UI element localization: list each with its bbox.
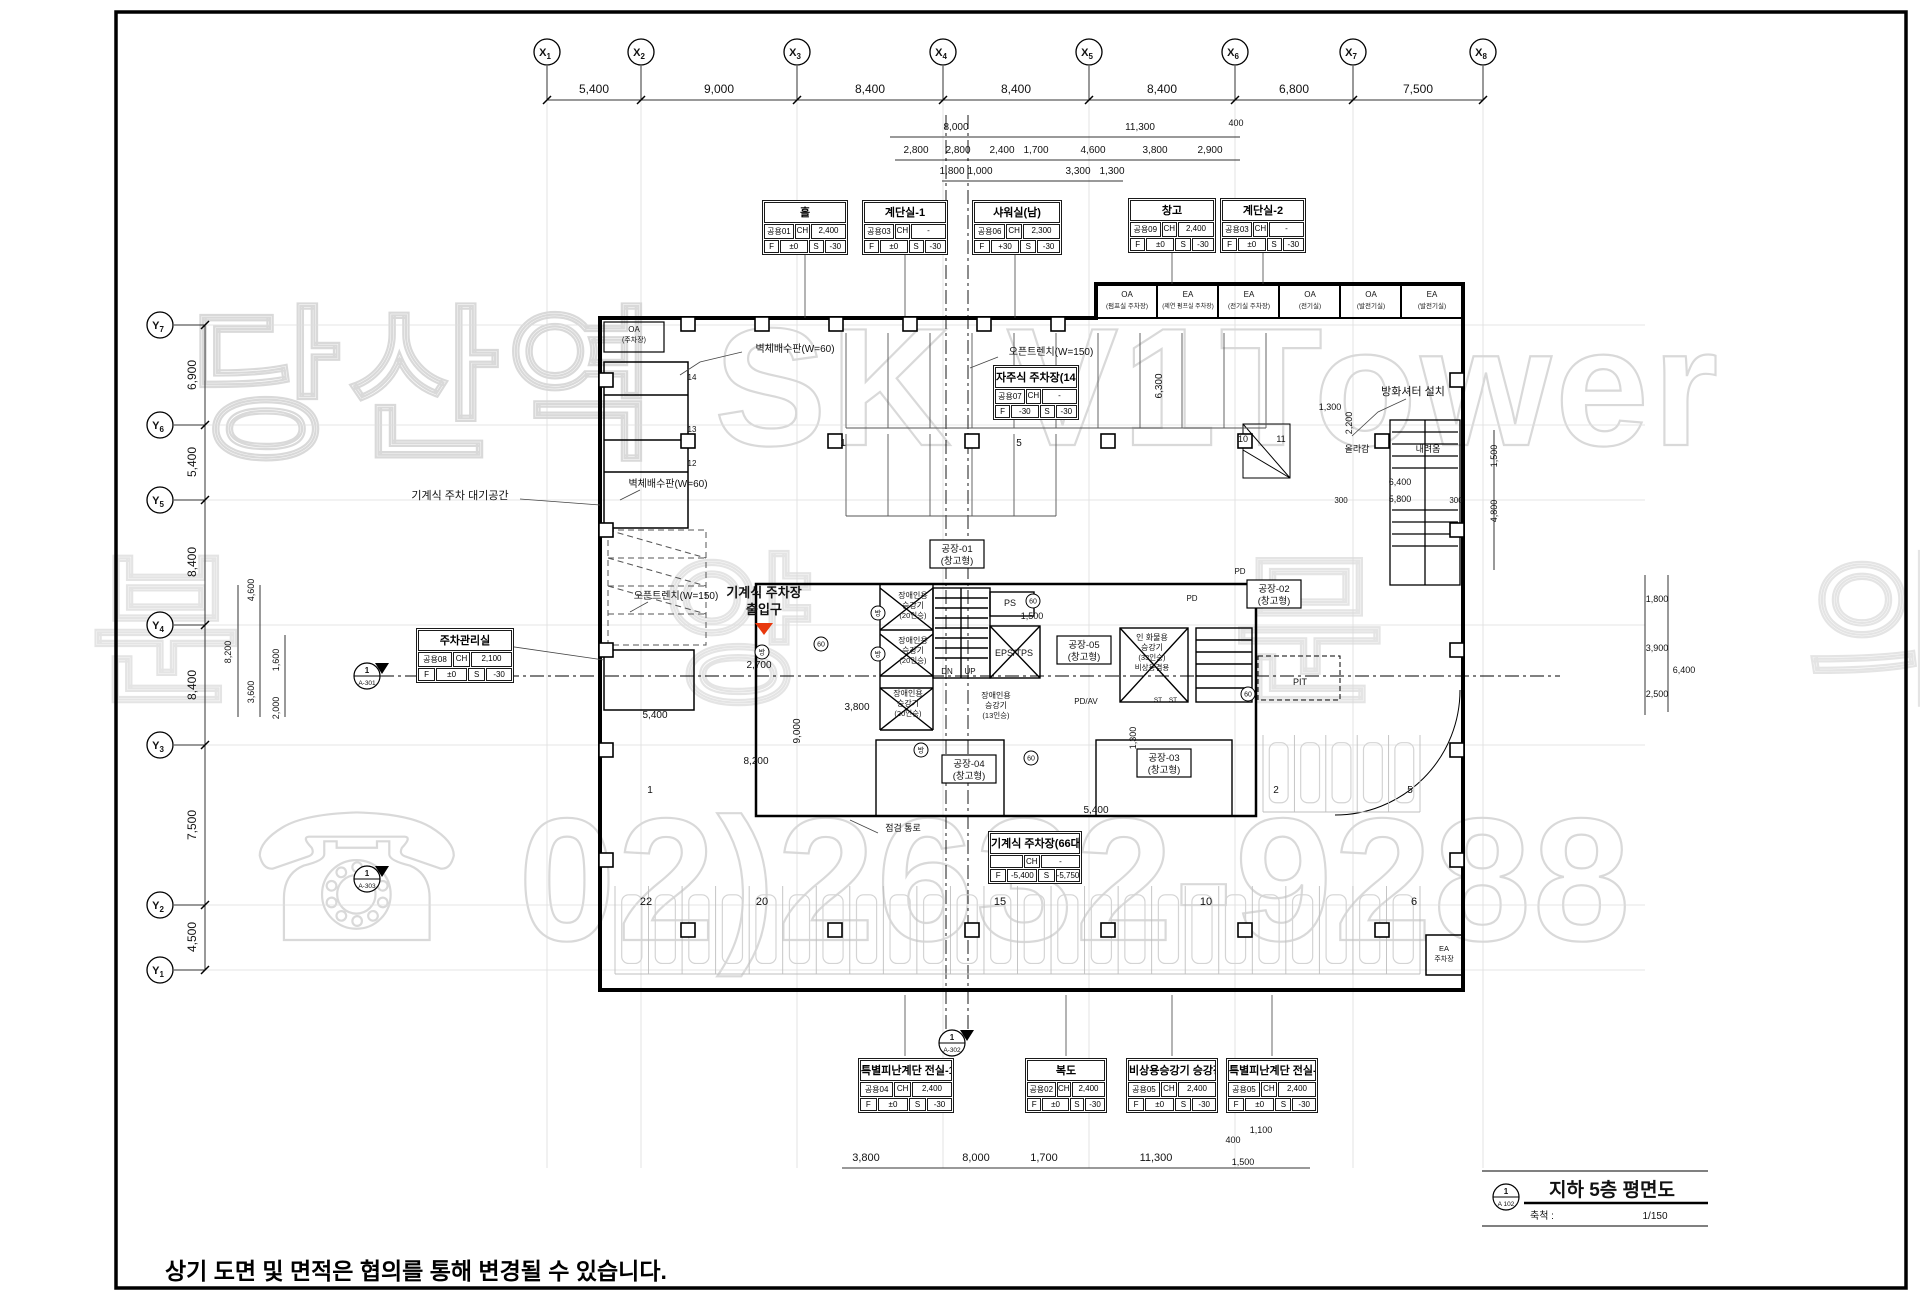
dim-text: 승강기 <box>902 600 924 610</box>
dim-text: (20인승) <box>899 655 927 665</box>
dim-text: 5,400 <box>579 82 609 96</box>
dim-text: 4,600 <box>1080 145 1105 156</box>
dim-text: 3,800 <box>1142 145 1167 156</box>
dim-text: 장애인용 <box>898 635 927 645</box>
dim-text: 400 <box>1228 118 1243 128</box>
dim-text: 2 <box>1273 785 1279 796</box>
dim-text: (창고형) <box>1068 652 1101 663</box>
dim-text: 승강기 <box>1141 642 1163 652</box>
fire-rating-text: 60 <box>1027 756 1035 763</box>
dim-text: (발전기실) <box>1418 301 1446 310</box>
dim-text: 1,700 <box>1030 1152 1058 1164</box>
column <box>829 317 843 331</box>
dim-text: 8,400 <box>1001 82 1031 96</box>
dim-text: 1,700 <box>1023 145 1048 156</box>
fire-rating-text: 60 <box>1244 692 1252 699</box>
dim-text: 4,800 <box>1489 500 1499 523</box>
column <box>1450 373 1464 387</box>
dim-text: PIT <box>1293 677 1308 687</box>
titleblock-sheet: A 102 <box>1498 1201 1515 1208</box>
dim-text: 1 <box>840 438 846 449</box>
column <box>599 643 613 657</box>
fire-rating-text: 60 <box>1029 599 1037 606</box>
column <box>1450 853 1464 867</box>
column <box>1238 923 1252 937</box>
dim-text: 3,600 <box>246 681 256 704</box>
dim-text: 1,300 <box>1099 166 1124 177</box>
dim-text: 2,200 <box>1344 412 1354 435</box>
dim-text: 공장-02 <box>1258 584 1289 595</box>
column <box>1101 434 1115 448</box>
column <box>828 923 842 937</box>
dim-text: 2,800 <box>945 145 970 156</box>
section-number: 1 <box>950 1033 955 1042</box>
dim-text: 공장-01 <box>941 544 972 555</box>
dim-text: 3,800 <box>844 702 869 713</box>
dim-text: 내려옴 <box>1416 444 1441 454</box>
open-trench-label: 오픈트렌치(W=150) <box>634 590 719 602</box>
dim-text: 1,800 <box>1646 594 1669 604</box>
dim-text: 2,000 <box>271 697 281 720</box>
dim-text: EPS/TPS <box>995 648 1033 658</box>
column <box>599 853 613 867</box>
dim-text: 비상용겸용 <box>1135 662 1170 672</box>
dim-text: 11,300 <box>1140 1152 1173 1164</box>
dim-text: 8,400 <box>855 82 885 96</box>
section-number: 1 <box>365 666 370 675</box>
dim-text: 13 <box>688 425 697 434</box>
column <box>977 317 991 331</box>
dim-text: 공장-04 <box>953 759 984 770</box>
dim-text: 1,800 <box>939 166 964 177</box>
dim-text: 2,400 <box>989 145 1014 156</box>
inspection-path-label: 점검 통로 <box>885 822 921 833</box>
dim-text: 5,400 <box>1083 805 1108 816</box>
entrance-label-line2: 출입구 <box>746 602 782 617</box>
column <box>1051 317 1065 331</box>
dim-text: 8,200 <box>743 756 768 767</box>
column <box>1375 434 1389 448</box>
dim-text: 8,200 <box>223 641 233 664</box>
dim-text: 10 <box>1200 896 1212 908</box>
dim-text: 7,500 <box>1403 82 1433 96</box>
dim-text: 4,500 <box>185 922 199 952</box>
dim-text: PD/AV <box>1074 697 1098 706</box>
dim-text: OA <box>1121 290 1133 299</box>
column <box>1375 923 1389 937</box>
dim-text: 20 <box>756 896 768 908</box>
column <box>599 523 613 537</box>
dim-text: 5,400 <box>185 447 199 477</box>
column <box>965 923 979 937</box>
dim-text: 1,100 <box>1250 1125 1273 1135</box>
dim-text: 8,400 <box>1147 82 1177 96</box>
open-trench-label: 오픈트렌치(W=150) <box>1009 346 1094 358</box>
dim-text: (주차장) <box>622 335 646 344</box>
dim-text: 공장-05 <box>1068 640 1099 651</box>
dim-text: 7,500 <box>185 810 199 840</box>
dim-text: 1,500 <box>1021 611 1044 621</box>
dim-text: 올라감 <box>1345 443 1370 454</box>
dim-text: OA <box>628 325 640 334</box>
dim-text: EA <box>1183 290 1194 299</box>
column <box>1450 643 1464 657</box>
dim-text: PD <box>1234 567 1245 576</box>
column <box>903 317 917 331</box>
dim-text: 6,800 <box>1279 82 1309 96</box>
dim-text: PS <box>1004 598 1016 608</box>
entrance-label-line1: 기계식 주차장 <box>726 585 801 600</box>
waiting-area-label: 기계식 주차 대기공간 <box>411 489 508 502</box>
dim-text: 장애인용 <box>898 590 927 600</box>
dim-text: (20인승) <box>894 708 922 718</box>
dim-text: (13인승) <box>982 710 1010 720</box>
dim-text: (창고형) <box>953 771 986 782</box>
dim-text: OA <box>1365 290 1377 299</box>
dim-text: DN <box>941 667 953 676</box>
dim-text: 1,000 <box>967 166 992 177</box>
dim-text: 3,900 <box>1646 643 1669 653</box>
dim-text: 6,900 <box>185 360 199 390</box>
dim-text: 인 화물용 <box>1136 632 1168 642</box>
dim-text: OA <box>1304 290 1316 299</box>
section-sheet: A-302 <box>943 1047 961 1054</box>
dim-text: 3,300 <box>1065 166 1090 177</box>
dim-text: (전기실 주차장) <box>1228 301 1270 310</box>
dim-text: 공장-03 <box>1148 753 1179 764</box>
dim-text: 3,800 <box>852 1152 880 1164</box>
dim-text: EA <box>1427 290 1438 299</box>
fire-rating-text: 방 <box>875 650 882 659</box>
column <box>681 317 695 331</box>
dim-text: 승강기 <box>985 700 1007 710</box>
dim-text: 10 <box>1238 434 1248 444</box>
drawing-sheet: 당산역 SK V1Tower 분양문의 ☎ 02)2632-9288 <box>0 0 1920 1300</box>
dim-text: 300 <box>1334 496 1348 505</box>
dim-text: 300 <box>1449 496 1463 505</box>
dim-text: (제연 펌프실 주차장) <box>1162 302 1214 310</box>
dim-text: 2,800 <box>903 145 928 156</box>
dim-text: ST <box>1154 697 1162 704</box>
dim-text: 12 <box>688 459 697 468</box>
dim-text: 6,400 <box>1673 665 1696 675</box>
dim-text: PD <box>1186 594 1197 603</box>
dim-text: 승강기 <box>902 645 924 655</box>
dim-text: 1 <box>647 785 653 796</box>
fire-rating-text: 방 <box>875 609 882 618</box>
dim-text: UP <box>964 667 975 676</box>
dim-text: (발전기실) <box>1357 301 1385 310</box>
dim-text: EA <box>1439 944 1449 953</box>
dim-text: 400 <box>1225 1135 1240 1145</box>
fire-rating-text: 방 <box>918 746 925 755</box>
dim-text: 장애인용 <box>981 690 1010 700</box>
fire-rating-text: 방 <box>759 648 766 657</box>
dim-text: 5 <box>1016 438 1022 449</box>
column <box>965 434 979 448</box>
wall-drain-label: 벽체배수판(W=60) <box>755 343 834 355</box>
scale-label: 축척 : <box>1530 1210 1554 1222</box>
scale-value: 1/150 <box>1642 1211 1667 1222</box>
dim-text: 2,900 <box>1197 145 1222 156</box>
column <box>1101 923 1115 937</box>
dim-text: 9,000 <box>704 82 734 96</box>
dim-text: (펌프실 주차장) <box>1106 301 1148 310</box>
dim-text: 6 <box>1411 896 1417 908</box>
dim-text: 5,800 <box>1389 494 1412 504</box>
column <box>681 434 695 448</box>
title-block: 1 A 102 지하 5층 평면도 축척 : 1/150 <box>1482 1171 1708 1226</box>
dim-text: 1,500 <box>1232 1157 1255 1167</box>
dim-text: 4,600 <box>246 579 256 602</box>
dim-text: (창고형) <box>1258 596 1291 607</box>
dim-text: 9,000 <box>792 718 803 743</box>
footer-note: 상기 도면 및 면적은 협의를 통해 변경될 수 있습니다. <box>165 1252 667 1286</box>
titleblock-number: 1 <box>1504 1187 1509 1196</box>
section-sheet: A-301 <box>358 680 376 687</box>
dim-text: (전기실) <box>1299 301 1321 310</box>
dim-text: ST <box>1169 697 1177 704</box>
dim-text: (20인승) <box>899 610 927 620</box>
watermark-line3: ☎ 02)2632-9288 <box>248 783 1632 978</box>
column <box>755 317 769 331</box>
column <box>599 743 613 757</box>
dim-text: 1,300 <box>1128 727 1138 750</box>
column <box>1450 743 1464 757</box>
section-number: 1 <box>365 869 370 878</box>
section-sheet: A-303 <box>358 883 376 890</box>
dim-text: 6,400 <box>1389 477 1412 487</box>
dim-text: 8,400 <box>185 670 199 700</box>
dim-text: 5,400 <box>642 710 667 721</box>
dim-text: 1,500 <box>1489 445 1499 468</box>
column <box>681 923 695 937</box>
fire-shutter-label: 방화셔터 설치 <box>1381 385 1445 398</box>
dim-text: 8,000 <box>943 122 968 133</box>
dim-text: 장애인용 <box>893 688 922 698</box>
dim-text: (33인승) <box>1138 652 1166 662</box>
dim-text: 2,500 <box>1646 689 1669 699</box>
column <box>599 373 613 387</box>
dim-text: 22 <box>640 896 652 908</box>
dim-text: 주차장 <box>1434 954 1454 963</box>
dim-text: (창고형) <box>1148 765 1181 776</box>
dim-text: 8,400 <box>185 547 199 577</box>
dim-text: 5 <box>1407 785 1413 796</box>
dim-text: EA <box>1244 290 1255 299</box>
wall-drain-label: 벽체배수판(W=60) <box>628 478 707 490</box>
dim-text: 15 <box>994 896 1006 908</box>
drawing-title: 지하 5층 평면도 <box>1549 1179 1675 1201</box>
dim-text: 승강기 <box>897 698 919 708</box>
dim-text: 8,000 <box>962 1152 990 1164</box>
floor-plan-canvas: 당산역 SK V1Tower 분양문의 ☎ 02)2632-9288 <box>0 0 1920 1300</box>
dim-text: 1,300 <box>1319 402 1342 412</box>
dim-text: 1,600 <box>271 649 281 672</box>
column <box>1450 523 1464 537</box>
dim-text: 2,700 <box>746 660 771 671</box>
dim-text: 14 <box>688 373 697 382</box>
dim-text: 6,300 <box>1154 373 1165 398</box>
dim-text: 11 <box>1276 434 1285 444</box>
dim-text: 11,300 <box>1125 122 1155 133</box>
fire-rating-text: 60 <box>817 642 825 649</box>
dim-text: (창고형) <box>941 556 974 567</box>
